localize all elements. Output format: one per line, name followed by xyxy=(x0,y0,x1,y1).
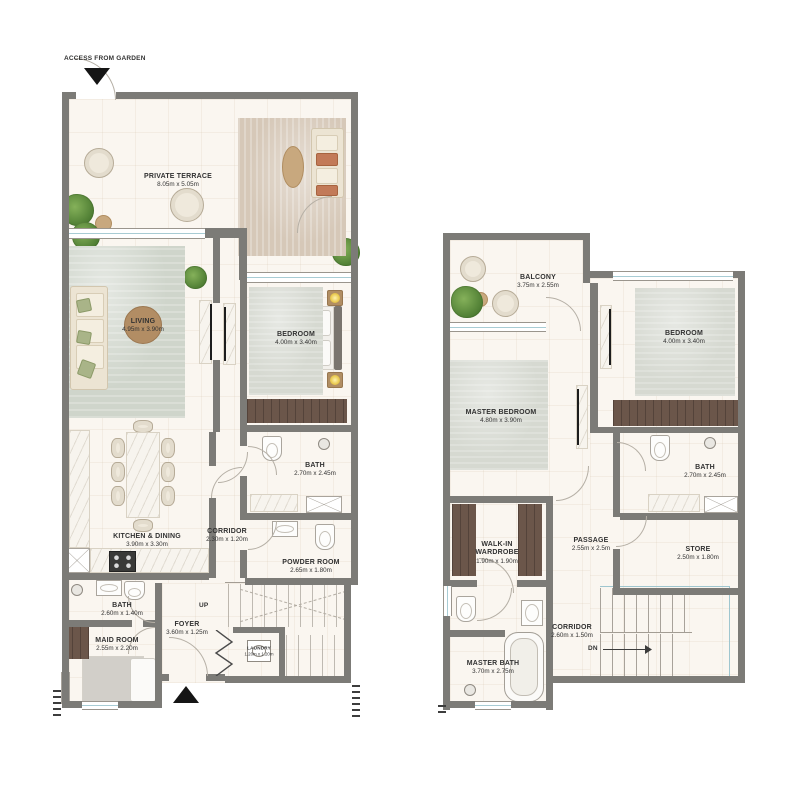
room-label-bath-f2: BATH 2.70m x 2.45m xyxy=(684,464,726,480)
terrace-window xyxy=(69,228,205,239)
stair-edge xyxy=(729,586,730,676)
wall xyxy=(239,228,247,280)
tv-screen xyxy=(210,304,212,360)
room-label-corridor1: CORRIDOR 2.30m x 1.20m xyxy=(206,528,248,544)
bifold-door xyxy=(213,630,235,676)
wall xyxy=(351,92,358,585)
room-label-bath1: BATH 2.70m x 2.45m xyxy=(294,462,336,478)
dining-chair xyxy=(161,486,175,506)
wall xyxy=(118,701,162,708)
wall xyxy=(209,432,216,466)
room-label-living: LIVING 4.95m x 3.90m xyxy=(122,318,164,334)
room-label-private-terrace: PRIVATE TERRACE 8.05m x 5.05m xyxy=(144,173,212,189)
room-label-bedroom2: BEDROOM 4.00m x 3.40m xyxy=(663,330,705,346)
access-from-garden-label: ACCESS FROM GARDEN xyxy=(64,55,146,62)
stove xyxy=(109,551,136,572)
room-label-walkin-wardrobe: WALK-IN WARDROBE 1.90m x 1.90m xyxy=(469,541,525,565)
wall xyxy=(738,271,745,683)
dining-table xyxy=(126,432,160,518)
maid-window xyxy=(82,701,118,710)
wall xyxy=(62,620,132,627)
wall xyxy=(116,92,358,99)
wall xyxy=(583,271,613,278)
sofa-pillow xyxy=(316,185,338,196)
shaft xyxy=(704,496,738,513)
shower-head xyxy=(318,438,330,450)
wall xyxy=(613,588,738,595)
room-label-bedroom1: BEDROOM 4.00m x 3.40m xyxy=(275,331,317,347)
bedside-lamp xyxy=(327,372,343,388)
wall xyxy=(155,583,162,708)
wall xyxy=(590,283,598,433)
wall xyxy=(344,578,351,683)
shower-head xyxy=(464,684,476,696)
terrace-chair xyxy=(170,188,204,222)
bedside-lamp xyxy=(327,290,343,306)
boundary-ticks xyxy=(352,685,360,721)
main-entry-arrow-icon xyxy=(173,686,199,703)
stairs-lower-flight xyxy=(600,634,674,676)
dining-chair xyxy=(133,519,153,532)
room-label-bath2: BATH 2.60m x 1.40m xyxy=(101,602,143,618)
bedroom2-wardrobe xyxy=(613,400,738,426)
wall xyxy=(213,237,220,303)
wall xyxy=(443,630,505,637)
wall xyxy=(443,701,475,708)
room-label-passage: PASSAGE 2.55m x 2.5m xyxy=(572,537,610,553)
wall xyxy=(279,627,285,677)
toilet xyxy=(315,524,335,550)
tv-screen xyxy=(224,307,226,361)
wall xyxy=(62,573,209,580)
wall xyxy=(511,701,553,708)
maid-bed-pillow xyxy=(130,658,156,702)
terrace-chair xyxy=(84,148,114,178)
sofa-cushion xyxy=(316,135,338,151)
wall xyxy=(240,432,247,446)
boundary-ticks xyxy=(438,705,446,717)
wall xyxy=(247,513,351,520)
wall xyxy=(245,578,351,585)
shower-head xyxy=(71,584,83,596)
dining-chair xyxy=(111,462,125,482)
bed-headboard xyxy=(334,306,342,370)
plant xyxy=(184,266,207,289)
masterbath-window xyxy=(475,701,511,710)
wall xyxy=(443,233,590,240)
wall xyxy=(233,627,285,633)
room-label-foyer: FOYER 3.60m x 1.25m xyxy=(166,621,208,637)
dining-chair xyxy=(111,438,125,458)
room-label-kitchen: KITCHEN & DINING 3.90m x 3.30m xyxy=(113,533,181,549)
wall xyxy=(62,701,82,708)
room-label-maid: MAID ROOM 2.55m x 2.20m xyxy=(95,637,138,653)
tv-screen xyxy=(577,389,579,445)
bath-vanity xyxy=(250,494,298,512)
shaft xyxy=(306,496,342,513)
boundary-ticks xyxy=(53,690,61,716)
bedroom-wardrobe xyxy=(247,399,347,423)
room-label-master-bedroom: MASTER BEDROOM 4.80m x 3.90m xyxy=(466,409,537,425)
wall xyxy=(62,92,69,708)
terrace-coffee-table xyxy=(282,146,304,188)
sofa-cushion xyxy=(316,168,338,184)
toilet xyxy=(456,596,476,622)
stair-landing-line xyxy=(600,632,692,633)
masterbath-sink xyxy=(521,600,543,626)
room-label-master-bath: MASTER BATH 3.70m x 2.75m xyxy=(467,660,520,676)
kitchen-counter xyxy=(90,548,209,573)
room-label-powder: POWDER ROOM 2.65m x 1.80m xyxy=(282,559,339,575)
balcony-chair xyxy=(492,290,519,317)
dining-chair xyxy=(161,438,175,458)
wall xyxy=(553,676,745,683)
living-sofa xyxy=(70,286,108,390)
side-window xyxy=(443,586,452,616)
sofa-green-pillow xyxy=(76,330,92,345)
wall xyxy=(155,674,169,681)
shower-head xyxy=(704,437,716,449)
dining-chair xyxy=(161,462,175,482)
wall xyxy=(546,496,553,710)
bath-sink xyxy=(96,580,122,596)
wall xyxy=(240,280,247,432)
tv-screen xyxy=(609,309,611,365)
wall xyxy=(213,360,220,432)
room-label-balcony: BALCONY 3.75m x 2.55m xyxy=(517,274,559,290)
bedroom-window xyxy=(247,272,351,283)
stairs-lower-flight xyxy=(286,635,345,676)
dn-arrow-line xyxy=(603,649,647,650)
plant xyxy=(451,286,483,318)
up-label: UP xyxy=(199,602,208,609)
wall xyxy=(240,550,247,578)
dn-label: DN xyxy=(588,645,598,652)
wall xyxy=(450,496,553,503)
wall xyxy=(225,676,351,683)
room-label-store: STORE 2.50m x 1.80m xyxy=(677,546,719,562)
terrace-sofa xyxy=(311,128,344,198)
balcony-railing-window xyxy=(450,322,546,332)
wall xyxy=(517,580,553,587)
balcony-chair xyxy=(460,256,486,282)
wall xyxy=(443,233,450,710)
bedroom2-window xyxy=(613,271,733,281)
kitchen-counter xyxy=(69,430,90,548)
toilet xyxy=(650,435,670,461)
floorplan-canvas: ACCESS FROM GARDEN xyxy=(0,0,800,800)
room-label-corridor-f2: CORRIDOR 2.60m x 1.50m xyxy=(551,624,593,640)
sofa-pillow xyxy=(316,153,338,166)
dining-chair xyxy=(111,486,125,506)
room-label-laundry: LAUNDRY 1.20m x 1.20m xyxy=(244,646,273,657)
bath-vanity xyxy=(648,494,700,512)
wall xyxy=(240,425,351,432)
